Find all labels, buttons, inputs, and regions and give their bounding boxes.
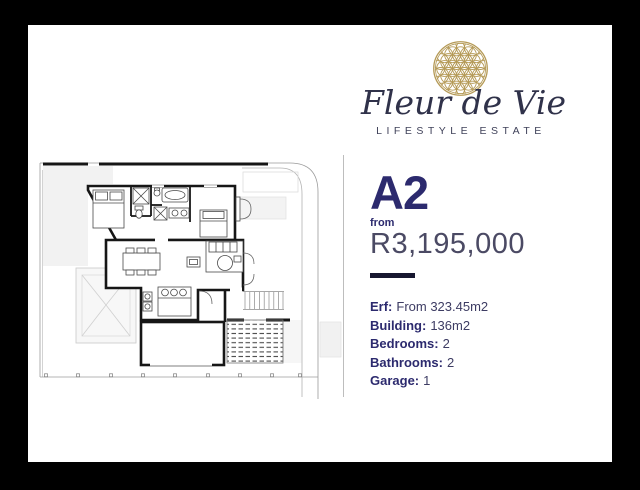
spec-row-bathrooms: Bathrooms:2: [370, 354, 600, 373]
spec-label: Bedrooms:: [370, 336, 439, 351]
spec-label: Bathrooms:: [370, 355, 443, 370]
spec-label: Garage:: [370, 373, 419, 388]
spec-value: 2: [447, 355, 454, 370]
spec-label: Building:: [370, 318, 426, 333]
spec-value: 2: [443, 336, 450, 351]
spec-label: Erf:: [370, 299, 392, 314]
spec-value: 1: [423, 373, 430, 388]
unit-price: R3,195,000: [370, 229, 600, 259]
floor-plan-image: [38, 152, 350, 404]
accent-bar: [370, 273, 415, 278]
deck: [227, 320, 283, 363]
brand-name: Fleur de Vie: [361, 83, 561, 123]
unit-info-panel: A2 from R3,195,000 Erf:From 323.45m2 Bui…: [370, 171, 600, 391]
spec-row-building: Building:136m2: [370, 317, 600, 336]
brand-tagline: LIFESTYLE ESTATE: [361, 125, 561, 137]
steps: [243, 292, 284, 310]
unit-code: A2: [370, 171, 600, 215]
boundary-ticks: [45, 374, 302, 377]
brochure-card: Fleur de Vie LIFESTYLE ESTATE: [28, 25, 612, 462]
spec-value: From 323.45m2: [396, 299, 488, 314]
brochure-page: { "logo": { "brand": "Fleur de Vie", "ta…: [0, 0, 640, 490]
spec-row-garage: Garage:1: [370, 372, 600, 391]
spec-value: 136m2: [430, 318, 470, 333]
spec-row-bedrooms: Bedrooms:2: [370, 335, 600, 354]
spec-list: Erf:From 323.45m2 Building:136m2 Bedroom…: [370, 298, 600, 391]
spec-row-erf: Erf:From 323.45m2: [370, 298, 600, 317]
vertical-divider: [343, 155, 344, 397]
